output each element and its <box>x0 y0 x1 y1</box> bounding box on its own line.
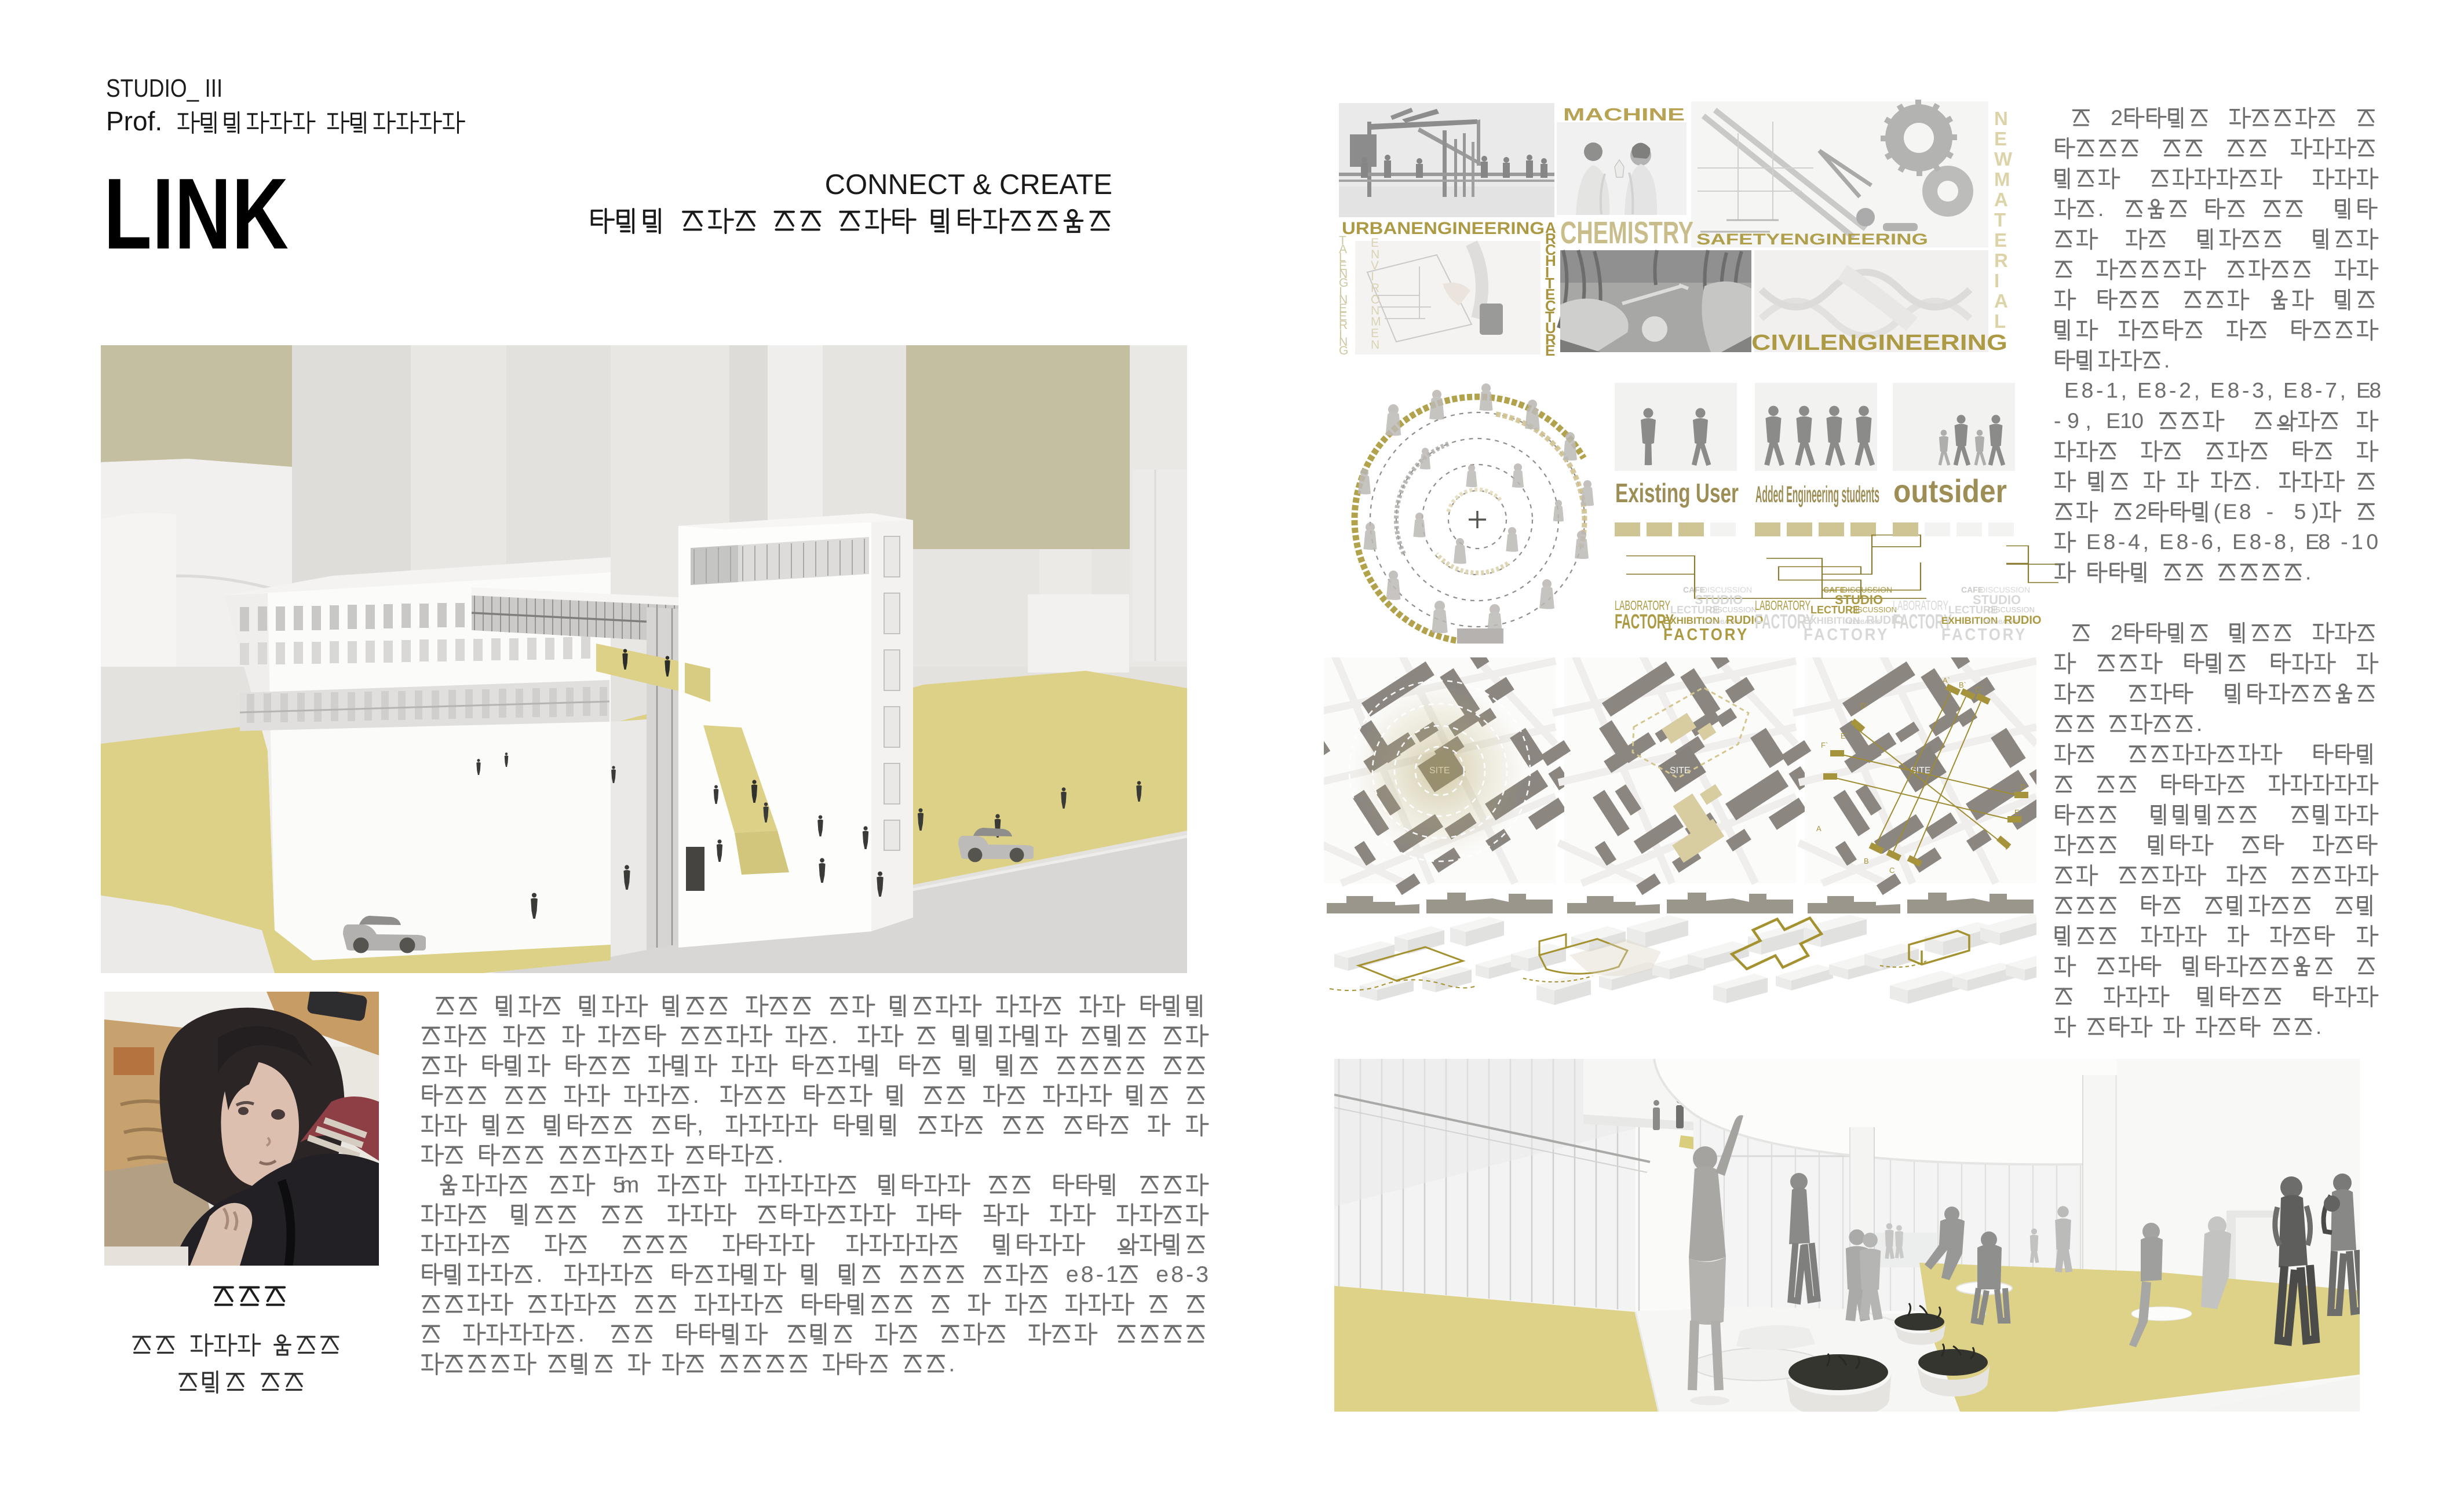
svg-text:.: . <box>536 1262 543 1287</box>
svg-text:FACTORY: FACTORY <box>1663 626 1749 644</box>
svg-text:FACTORY: FACTORY <box>1804 626 1889 644</box>
svg-text:E8-1,: E8-1, <box>2064 378 2127 403</box>
svg-text:.: . <box>2254 469 2260 494</box>
svg-text:D`: D` <box>1860 701 1868 710</box>
svg-text:C: C <box>1889 866 1894 875</box>
svg-text:.: . <box>948 1352 955 1377</box>
svg-text:E10: E10 <box>2106 408 2144 433</box>
svg-text:RUDIO: RUDIO <box>2004 614 2041 627</box>
svg-text:N: N <box>1994 108 2008 129</box>
svg-text:B`: B` <box>1959 681 1966 689</box>
svg-text:W: W <box>1994 148 2013 170</box>
svg-text:E8: E8 <box>2305 529 2330 554</box>
svg-text:FACTORY: FACTORY <box>1941 626 2027 644</box>
svg-text:SAFETYENGINEERING: SAFETYENGINEERING <box>1696 231 1928 248</box>
svg-text:DISCUSSION: DISCUSSION <box>1710 605 1757 614</box>
svg-text:E: E <box>2014 808 2020 817</box>
svg-text:E`: E` <box>1841 732 1848 740</box>
svg-text:B: B <box>1864 857 1869 865</box>
svg-text:I: I <box>1994 270 1999 291</box>
svg-text:E: E <box>1994 229 2007 251</box>
svg-text:.: . <box>693 1083 699 1108</box>
svg-text:E8: E8 <box>2356 378 2381 403</box>
svg-text:.: . <box>777 1143 783 1168</box>
svg-text:A: A <box>1994 290 2008 312</box>
svg-text:.: . <box>2164 348 2170 372</box>
svg-text:.: . <box>2196 711 2202 736</box>
svg-text:5m: 5m <box>613 1173 639 1198</box>
svg-text:E8-7,: E8-7, <box>2283 378 2346 403</box>
svg-text:e8-1: e8-1 <box>1066 1262 1119 1287</box>
svg-text:E: E <box>1994 128 2007 149</box>
svg-text:E8-2,: E8-2, <box>2137 378 2200 403</box>
svg-text:(E8: (E8 <box>2214 499 2251 524</box>
svg-text:F: F <box>2005 843 2010 851</box>
svg-text:CIVILENGINEERING: CIVILENGINEERING <box>1751 331 2007 355</box>
svg-text:E8-3,: E8-3, <box>2210 378 2273 403</box>
svg-text:C`: C` <box>1975 685 1983 694</box>
svg-text:G: G <box>1339 344 1348 357</box>
svg-text:Added Engineering students: Added Engineering students <box>1755 482 1879 507</box>
svg-text:DISCUSSION: DISCUSSION <box>1988 605 2035 614</box>
svg-text:E8-6,: E8-6, <box>2159 529 2222 554</box>
svg-text:N: N <box>1371 338 1379 352</box>
svg-text:Existing User: Existing User <box>1615 478 1739 508</box>
svg-text:CHEMISTRY: CHEMISTRY <box>1560 215 1693 250</box>
svg-text:E8-8,: E8-8, <box>2232 529 2295 554</box>
svg-text:E8-4,: E8-4, <box>2086 529 2149 554</box>
svg-text:URBANENGINEERING: URBANENGINEERING <box>1342 219 1545 238</box>
svg-text:e8-3: e8-3 <box>1156 1262 1209 1287</box>
svg-text:.: . <box>578 1322 585 1347</box>
svg-text:2: 2 <box>2135 499 2147 524</box>
svg-text:Prof.: Prof. <box>106 106 162 136</box>
svg-text:2: 2 <box>2111 107 2123 130</box>
svg-text:D: D <box>2020 783 2025 791</box>
svg-text:F`: F` <box>1821 741 1828 750</box>
svg-text:A: A <box>1816 824 1821 833</box>
svg-text:outsider: outsider <box>1893 473 2007 509</box>
svg-text:R: R <box>1994 250 2008 271</box>
svg-text:-9,: -9, <box>2054 408 2091 433</box>
svg-text:T: T <box>1994 209 2006 231</box>
svg-text:E: E <box>1545 342 1555 359</box>
svg-text:MACHINE: MACHINE <box>1563 104 1685 125</box>
svg-text:.: . <box>2316 1014 2321 1039</box>
svg-text:-10: -10 <box>2341 529 2378 554</box>
svg-text:A: A <box>1994 189 2008 210</box>
svg-text:-: - <box>2266 499 2273 524</box>
svg-text:.: . <box>2098 196 2104 221</box>
svg-text:L: L <box>1994 310 2006 332</box>
svg-text:.: . <box>2305 560 2311 584</box>
svg-text:5): 5) <box>2294 499 2319 524</box>
svg-text:M: M <box>1994 169 2010 190</box>
svg-text:.: . <box>831 1024 838 1048</box>
svg-text:,: , <box>697 1113 703 1138</box>
svg-text:A`: A` <box>1943 676 1950 685</box>
svg-text:DISCUSSION: DISCUSSION <box>1850 605 1897 614</box>
svg-text:2: 2 <box>2111 620 2123 645</box>
